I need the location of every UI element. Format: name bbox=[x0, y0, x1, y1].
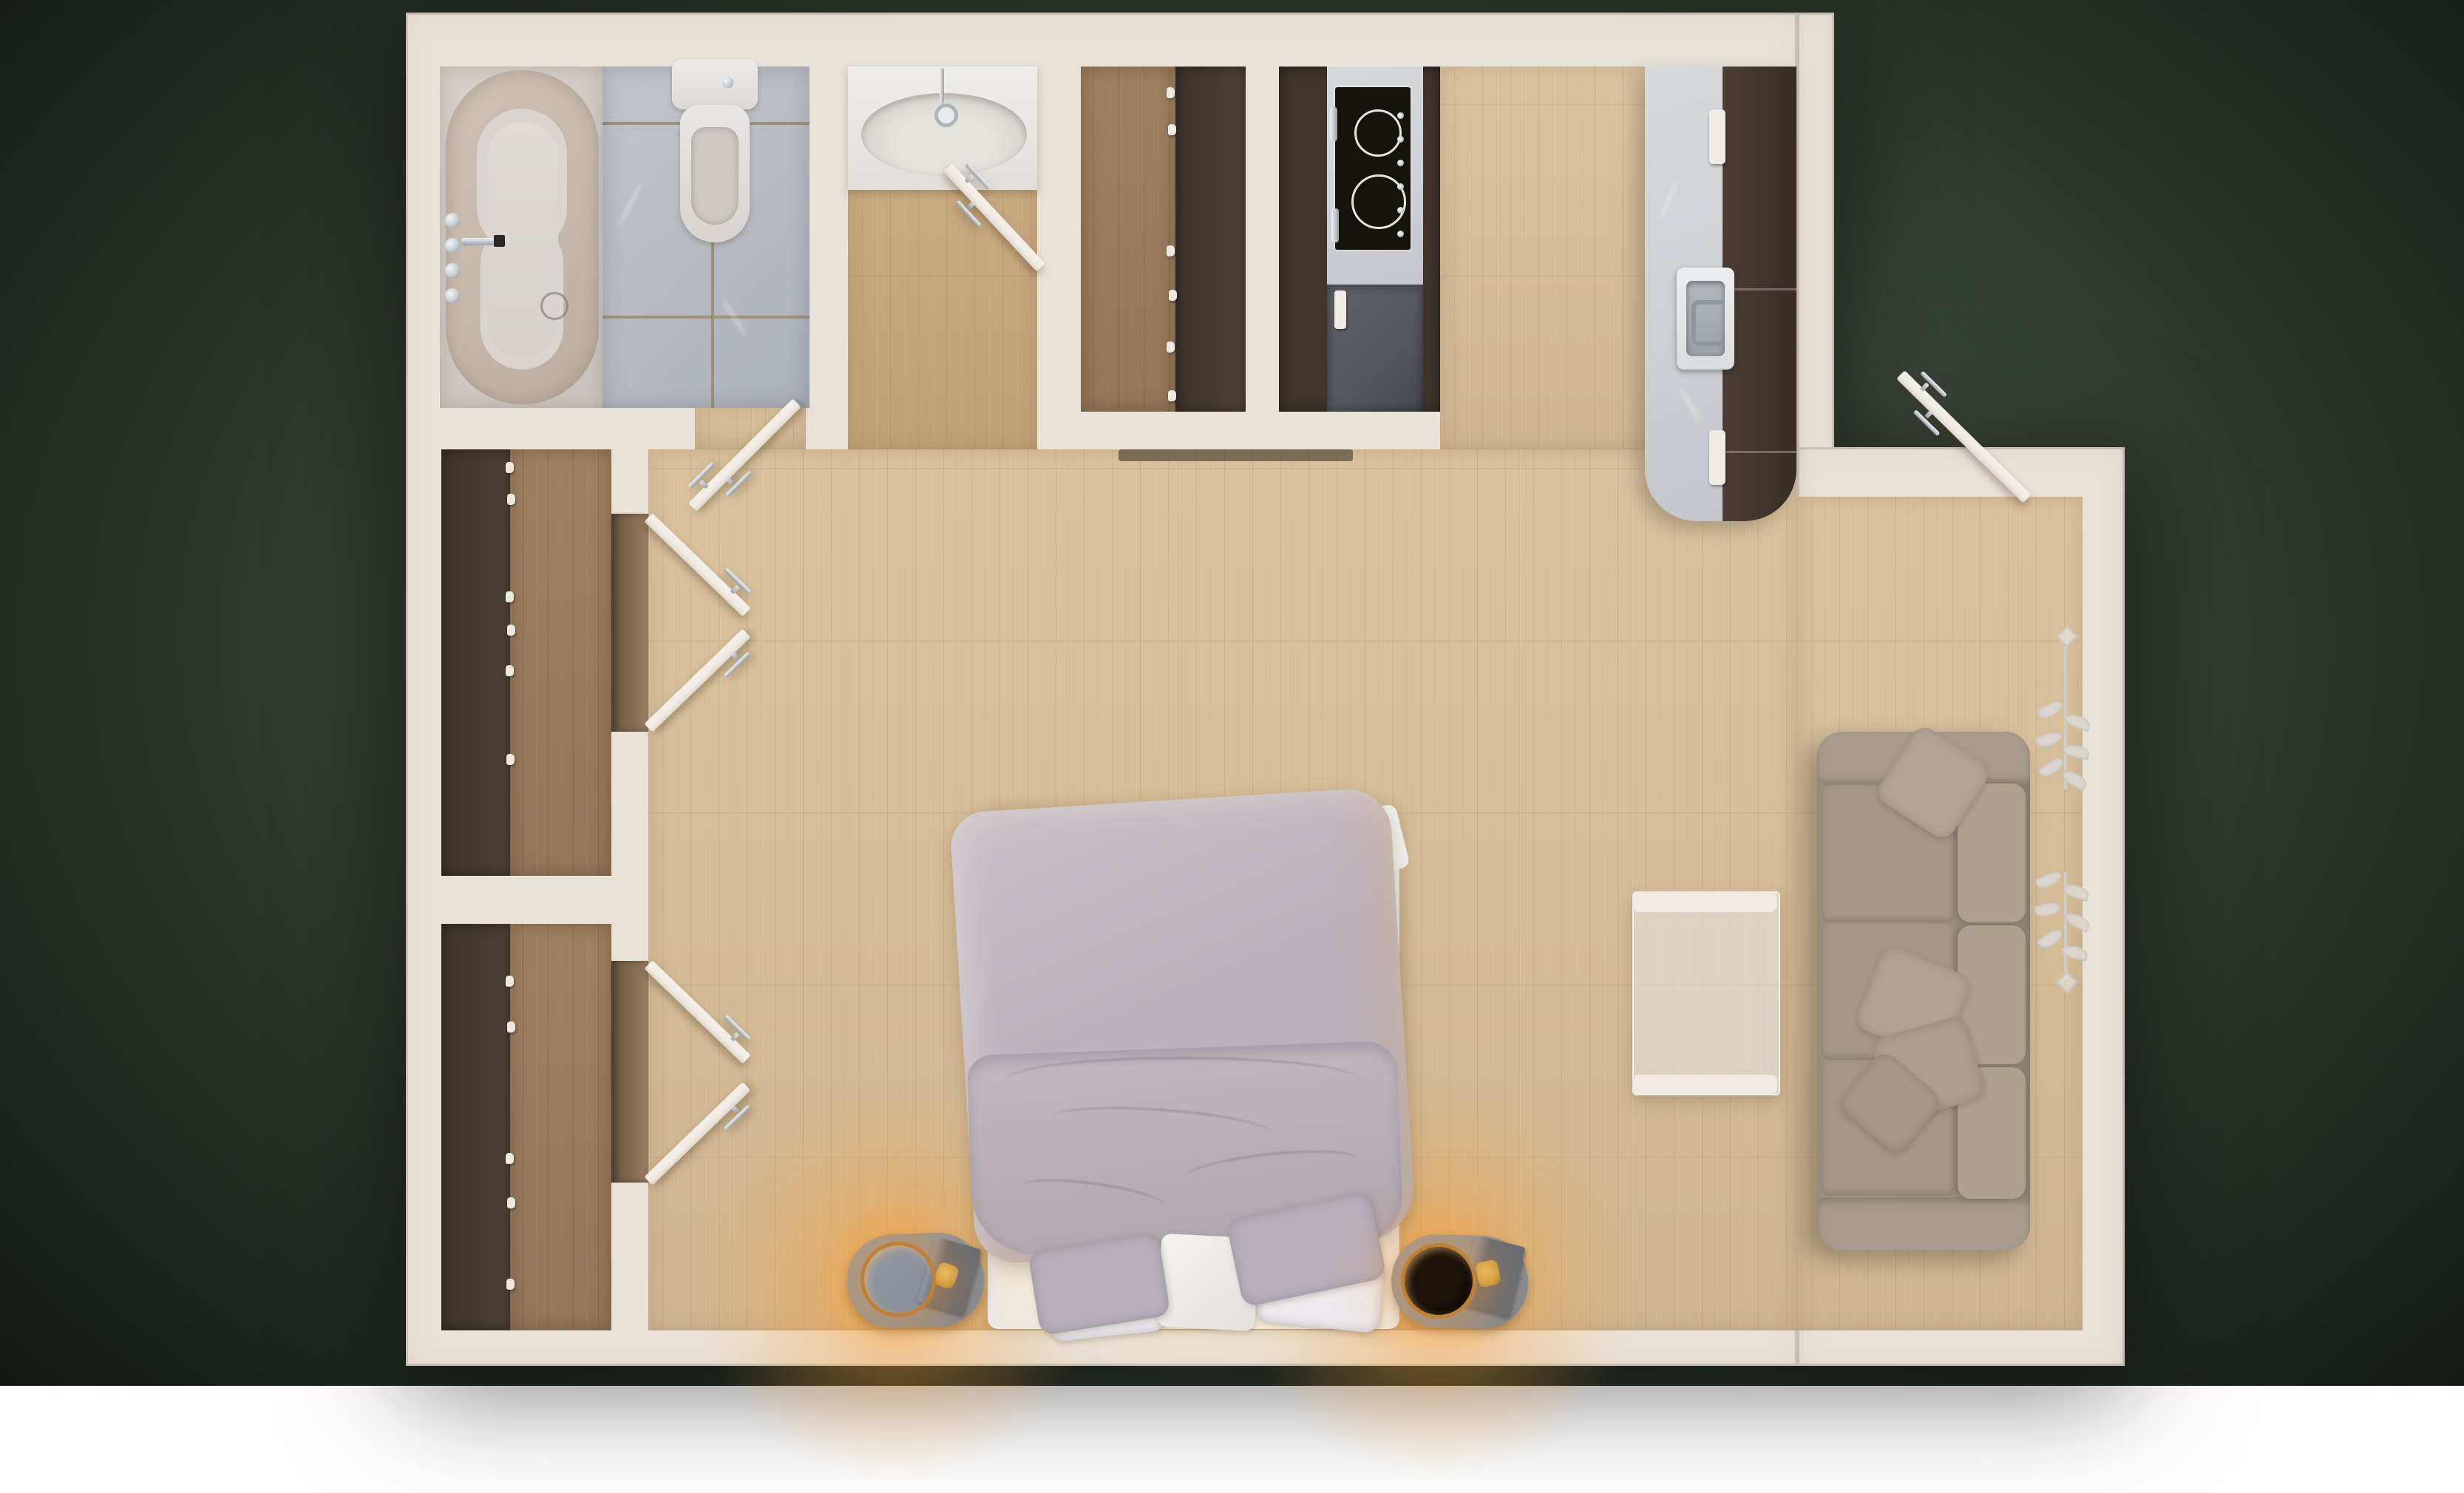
cabinet-seam bbox=[1723, 451, 1796, 453]
sink-faucet-ring bbox=[934, 103, 958, 127]
toilet-tank bbox=[672, 59, 758, 109]
wardrobe-upper-doorway bbox=[611, 514, 648, 732]
cooktop-knob bbox=[1397, 160, 1404, 166]
closet-hook bbox=[506, 976, 514, 987]
pot-handle-icon bbox=[1330, 107, 1337, 141]
counter-sink-faucet bbox=[1691, 300, 1724, 346]
bath-faucet-knob bbox=[445, 213, 460, 228]
cooktop-knob bbox=[1397, 207, 1404, 214]
closet-hook bbox=[507, 625, 515, 636]
wall-slab-top-right-column bbox=[1797, 13, 1834, 497]
bath-faucet-knob bbox=[445, 288, 460, 303]
cooktop-knob bbox=[1397, 136, 1404, 143]
wardrobe-lower-floor bbox=[510, 924, 611, 1330]
bath-spout-tip bbox=[494, 235, 505, 247]
closet-hook bbox=[507, 1021, 515, 1033]
closet-hook bbox=[506, 591, 514, 602]
wardrobe-lower-doorway bbox=[611, 961, 648, 1183]
bath-faucet-knob bbox=[445, 238, 460, 253]
cooktop bbox=[1335, 87, 1411, 250]
cooktop-knob bbox=[1397, 231, 1404, 237]
toilet bbox=[672, 59, 758, 244]
closet-hook bbox=[1167, 245, 1175, 256]
closet-hook bbox=[1168, 390, 1176, 401]
closet-hook bbox=[506, 754, 515, 765]
sofa-armrest-bottom bbox=[1817, 1197, 2030, 1251]
bathtub-drain bbox=[540, 292, 569, 320]
burner-ring-icon bbox=[1351, 174, 1406, 229]
kitchen-threshold-shadow bbox=[1119, 449, 1353, 461]
closet-hook bbox=[506, 462, 514, 473]
coffee-table-rail-top bbox=[1632, 891, 1777, 912]
sink-faucet-stem bbox=[940, 68, 944, 103]
sink-vanity bbox=[848, 67, 1037, 190]
coffee-table-rail-bottom bbox=[1632, 1075, 1777, 1095]
coffee-table bbox=[1632, 891, 1780, 1095]
toilet-flush-button bbox=[722, 77, 733, 88]
kitchen-lower-cabinet bbox=[1327, 285, 1423, 412]
table-lamp-right bbox=[1401, 1243, 1476, 1319]
closet-hook bbox=[1167, 87, 1175, 98]
bathtub bbox=[446, 70, 599, 404]
cooktop-knob bbox=[1397, 183, 1404, 190]
cabinet-handle bbox=[1334, 290, 1346, 329]
wardrobe-upper-floor bbox=[510, 449, 611, 876]
wardrobe-upper-back-panel bbox=[441, 449, 510, 876]
sofa bbox=[1817, 732, 2030, 1251]
closet-hook bbox=[1169, 290, 1177, 301]
counter-handle bbox=[1709, 109, 1725, 164]
counter-handle bbox=[1709, 430, 1725, 485]
table-lamp-left bbox=[861, 1242, 936, 1317]
toilet-seat bbox=[691, 127, 739, 225]
entry-closet-back-panel bbox=[1175, 67, 1246, 412]
floor-plan-stage bbox=[0, 0, 2464, 1386]
kitchen-niche bbox=[1279, 67, 1444, 412]
closet-hook bbox=[506, 1153, 514, 1164]
wardrobe-lower-back-panel bbox=[441, 924, 510, 1330]
bath-faucet-knob bbox=[445, 263, 460, 278]
closet-hook bbox=[507, 1197, 515, 1208]
cooktop-knob bbox=[1397, 112, 1404, 119]
closet-hook bbox=[1168, 124, 1176, 135]
closet-hook bbox=[507, 494, 515, 505]
pot-handle-icon bbox=[1331, 208, 1339, 242]
closet-hook bbox=[506, 1279, 515, 1290]
burner-ring-icon bbox=[1354, 109, 1402, 157]
closet-hook bbox=[1167, 341, 1175, 353]
closet-hook bbox=[506, 665, 514, 676]
kitchen-counter-right bbox=[1645, 67, 1796, 521]
entry-closet-floor bbox=[1081, 67, 1175, 412]
counter-sink bbox=[1677, 268, 1734, 370]
duvet-wrinkle bbox=[1005, 1057, 1360, 1103]
